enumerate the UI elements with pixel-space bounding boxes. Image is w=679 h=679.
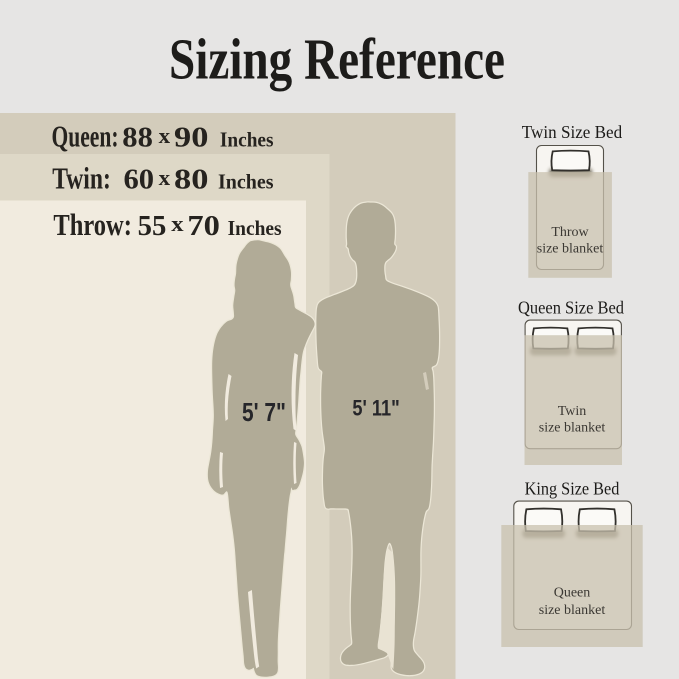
svg-text:Inches: Inches [220, 128, 274, 152]
svg-text:Queen Size Bed: Queen Size Bed [518, 298, 624, 318]
svg-text:Twin:: Twin: [52, 161, 111, 196]
svg-text:70: 70 [187, 211, 220, 242]
svg-text:5' 11": 5' 11" [352, 397, 399, 421]
svg-text:Inches: Inches [228, 216, 282, 240]
svg-text:90: 90 [174, 123, 208, 154]
svg-text:size blanket: size blanket [539, 421, 606, 436]
svg-text:Twin Size Bed: Twin Size Bed [522, 122, 623, 142]
svg-text:King Size Bed: King Size Bed [525, 479, 620, 499]
svg-text:Inches: Inches [218, 170, 274, 194]
svg-text:Twin: Twin [558, 404, 587, 419]
svg-text:55: 55 [138, 211, 167, 242]
svg-text:size blanket: size blanket [539, 603, 606, 618]
svg-text:5' 7": 5' 7" [242, 398, 286, 427]
svg-text:x: x [171, 211, 183, 236]
svg-text:88: 88 [122, 123, 153, 154]
svg-text:size blanket: size blanket [537, 242, 604, 257]
svg-text:60: 60 [124, 165, 155, 196]
svg-text:x: x [159, 165, 171, 190]
svg-text:x: x [159, 123, 171, 148]
svg-text:Queen:: Queen: [52, 119, 119, 154]
svg-text:Throw: Throw [551, 225, 589, 240]
svg-text:Throw:: Throw: [53, 207, 131, 242]
svg-text:80: 80 [174, 165, 208, 196]
svg-text:Queen: Queen [554, 586, 591, 601]
svg-text:Sizing Reference: Sizing Reference [169, 27, 505, 92]
